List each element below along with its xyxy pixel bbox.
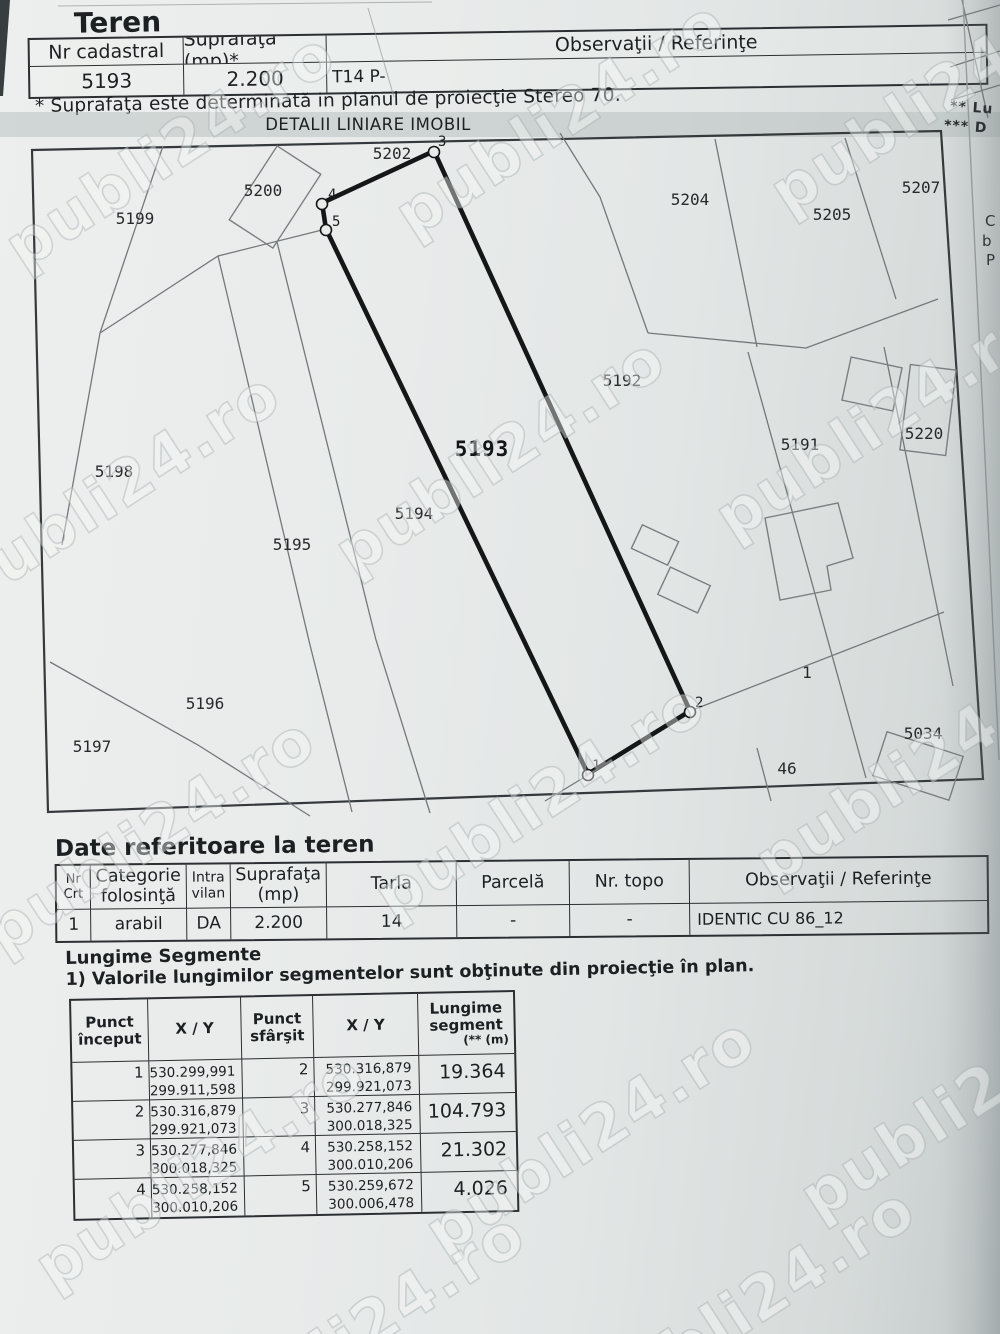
seg4-y1: 300.010,206 xyxy=(152,1198,237,1217)
seg3-x1: 530.277,846 xyxy=(151,1142,236,1161)
seg3-end-xy: 530.258,152300.010,206 xyxy=(316,1134,422,1175)
segments-table: Punct început X / Y Punct sfârşit X / Y … xyxy=(69,990,519,1221)
parcel-label-5207: 5207 xyxy=(902,178,941,197)
seg3-start: 3 xyxy=(74,1139,152,1180)
col-header-xy-end: X / Y xyxy=(313,994,419,1058)
seg1-length: 19.364 xyxy=(419,1054,515,1095)
scan-edge-dark-corner xyxy=(0,0,10,96)
seg2-start-xy: 530.316,879299.921,073 xyxy=(150,1098,244,1139)
watermark: publi24.ro xyxy=(0,356,294,623)
parcel-label-5205: 5205 xyxy=(813,205,852,224)
seg2-y2: 300.018,325 xyxy=(315,1117,412,1136)
seg2-x2: 530.277,846 xyxy=(315,1099,412,1118)
cell-nr-crt: 1 xyxy=(57,910,91,941)
seg2-start: 2 xyxy=(73,1100,151,1141)
col-header-tarla: Tarla xyxy=(327,862,457,907)
col-header-suprafata: Suprafaţa (mp)* xyxy=(184,36,327,65)
seg4-length: 4.026 xyxy=(422,1171,518,1212)
col-header-punct-inceput: Punct început xyxy=(71,999,149,1063)
cell-intravilan: DA xyxy=(187,908,231,939)
page-fold-shading xyxy=(942,0,1000,1334)
seg4-end: 5 xyxy=(245,1175,318,1215)
watermark: publi24.ro xyxy=(321,321,678,588)
subject-parcel-outline xyxy=(322,151,690,774)
seg1-end: 2 xyxy=(242,1058,315,1098)
parcel-label-5196: 5196 xyxy=(186,694,225,713)
seg3-start-xy: 530.277,846300.018,325 xyxy=(151,1137,245,1178)
seg3-y2: 300.010,206 xyxy=(316,1156,413,1175)
seg4-start: 4 xyxy=(75,1178,153,1219)
scanned-document: Teren Nr cadastral Suprafaţa (mp)* Obser… xyxy=(0,0,1000,1334)
cell-parcela: - xyxy=(457,905,570,937)
seg2-y1: 299.921,073 xyxy=(151,1120,236,1139)
cell-nr-cadastral: 5193 xyxy=(30,65,184,97)
seg4-x2: 530.259,672 xyxy=(317,1177,414,1196)
seg1-x1: 530.299,991 xyxy=(149,1064,234,1083)
parcel-label-5195: 5195 xyxy=(273,535,312,554)
seg4-start-xy: 530.258,152300.010,206 xyxy=(152,1176,246,1217)
point-label-4: 4 xyxy=(328,187,336,203)
segments-section: Lungime Segmente 1) Valorile lungimilor … xyxy=(65,934,759,1221)
seg1-end-xy: 530.316,879299.921,073 xyxy=(314,1056,420,1097)
seg2-end-xy: 530.277,846300.018,325 xyxy=(315,1095,421,1136)
seg3-length: 21.302 xyxy=(421,1132,517,1173)
col-header-parcela: Parcelă xyxy=(457,861,570,906)
building-outlines xyxy=(229,146,963,800)
parcel-label-46: 46 xyxy=(777,759,796,778)
seg1-x2: 530.316,879 xyxy=(314,1060,411,1079)
seg3-y1: 300.018,325 xyxy=(151,1159,236,1178)
parcel-labels: 5199 5200 5202 5204 5205 5207 5192 5191 … xyxy=(73,144,944,778)
boundary-point-labels: 3 4 5 2 1 xyxy=(328,134,703,774)
parcel-label-5191: 5191 xyxy=(781,435,820,454)
col-header-intravilan: Intra vilan xyxy=(187,864,231,908)
point-label-2: 2 xyxy=(695,695,703,711)
seg4-end-xy: 530.259,672300.006,478 xyxy=(317,1173,423,1214)
col-header-nr-cadastral: Nr cadastral xyxy=(30,38,184,67)
cell-categorie: arabil xyxy=(91,909,187,941)
map-title: DETALII LINIARE IMOBIL xyxy=(228,115,508,134)
boundary-point-markers xyxy=(317,147,696,781)
cell-tarla: 14 xyxy=(327,906,457,938)
teren-section-heading: Date referitoare la teren xyxy=(55,832,375,862)
col-header-categorie: Categorie folosinţă xyxy=(91,865,187,910)
lungime-segment-title: Lungime segment xyxy=(421,999,511,1034)
parcel-label-5200: 5200 xyxy=(244,181,283,200)
parcel-label-5199: 5199 xyxy=(116,209,155,228)
seg4-x1: 530.258,152 xyxy=(152,1181,237,1200)
seg2-end: 3 xyxy=(243,1097,316,1137)
parcel-label-1: 1 xyxy=(802,663,812,682)
seg3-end: 4 xyxy=(244,1136,317,1176)
cell-nr-topo: - xyxy=(570,904,690,936)
col-header-nr-topo: Nr. topo xyxy=(570,860,690,905)
parcel-label-5220: 5220 xyxy=(905,424,944,443)
seg2-x1: 530.316,879 xyxy=(150,1103,235,1122)
subject-parcel-label: 5193 xyxy=(455,437,510,461)
seg1-y1: 299.911,598 xyxy=(150,1081,235,1100)
col-header-lungime-segment: Lungime segment (** (m) xyxy=(418,992,514,1056)
parcel-label-5034: 5034 xyxy=(904,724,943,743)
teren-table: Nr Crt Categorie folosinţă Intra vilan S… xyxy=(55,855,990,943)
seg1-start: 1 xyxy=(72,1061,150,1102)
map-frame xyxy=(32,131,983,812)
lungime-segment-unit: (** (m) xyxy=(463,1033,511,1047)
seg1-y2: 299.921,073 xyxy=(315,1078,412,1097)
col-header-punct-sfarsit: Punct sfârşit xyxy=(241,996,314,1059)
parcel-label-5204: 5204 xyxy=(671,190,710,209)
parcel-label-5194: 5194 xyxy=(395,504,434,523)
parcel-label-5198: 5198 xyxy=(95,462,134,481)
seg2-length: 104.793 xyxy=(420,1093,516,1134)
seg3-x2: 530.258,152 xyxy=(316,1138,413,1157)
col-header-nr-crt: Nr Crt xyxy=(57,866,91,910)
parcel-label-5192: 5192 xyxy=(603,371,642,390)
parcel-boundaries xyxy=(50,133,953,816)
seg4-y2: 300.006,478 xyxy=(317,1195,414,1214)
seg1-start-xy: 530.299,991299.911,598 xyxy=(149,1059,243,1100)
parcel-label-5197: 5197 xyxy=(73,737,112,756)
point-label-5: 5 xyxy=(332,214,340,230)
cell-suprafata-mp: 2.200 xyxy=(231,907,327,939)
col-header-xy-start: X / Y xyxy=(148,997,242,1061)
parcel-label-5202: 5202 xyxy=(373,144,412,163)
page-title: Teren xyxy=(74,5,162,40)
point-label-1: 1 xyxy=(592,758,600,774)
col-header-suprafata-mp: Suprafaţa (mp) xyxy=(231,863,327,908)
